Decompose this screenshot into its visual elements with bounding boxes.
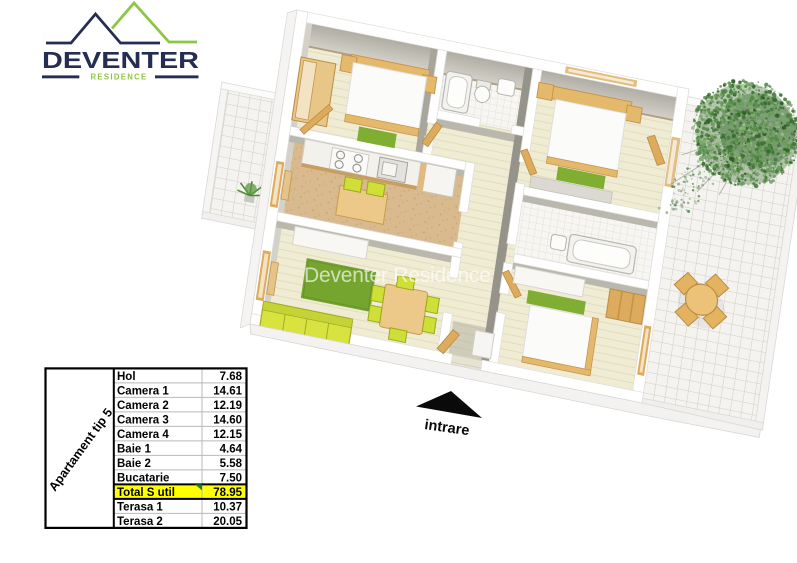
svg-text:Bucatarie: Bucatarie — [117, 472, 169, 484]
svg-text:7.68: 7.68 — [220, 371, 243, 383]
svg-text:Baie 1: Baie 1 — [117, 443, 151, 455]
svg-text:Baie 2: Baie 2 — [117, 458, 151, 470]
svg-text:14.61: 14.61 — [213, 385, 242, 397]
svg-text:14.60: 14.60 — [213, 414, 242, 426]
svg-text:Terasa 2: Terasa 2 — [117, 516, 163, 528]
svg-text:RESIDENCE: RESIDENCE — [91, 72, 148, 82]
svg-text:5.58: 5.58 — [220, 458, 243, 470]
svg-text:Total S util: Total S util — [117, 487, 175, 499]
svg-text:Hol: Hol — [117, 371, 136, 383]
svg-text:12.19: 12.19 — [213, 400, 242, 412]
svg-text:Camera 1: Camera 1 — [117, 385, 169, 397]
svg-text:4.64: 4.64 — [220, 443, 243, 455]
svg-text:20.05: 20.05 — [213, 516, 242, 528]
svg-text:12.15: 12.15 — [213, 429, 242, 441]
svg-text:78.95: 78.95 — [213, 487, 242, 499]
svg-text:Camera 3: Camera 3 — [117, 414, 169, 426]
svg-text:7.50: 7.50 — [220, 472, 242, 484]
svg-text:DEVENTER: DEVENTER — [42, 47, 199, 73]
svg-text:Camera 2: Camera 2 — [117, 400, 169, 412]
svg-text:Camera 4: Camera 4 — [117, 429, 169, 441]
svg-text:10.37: 10.37 — [213, 501, 242, 513]
svg-text:Terasa 1: Terasa 1 — [117, 501, 163, 513]
svg-text:Deventer Residence: Deventer Residence — [304, 264, 491, 287]
